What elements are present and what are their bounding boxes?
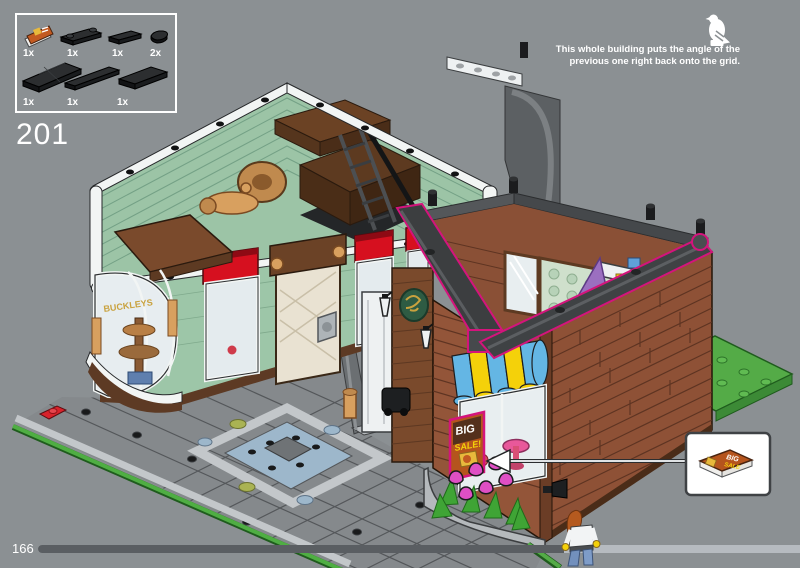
part-big-sale-book-tile bbox=[25, 26, 53, 47]
minifigure-progress-marker bbox=[560, 503, 606, 567]
part-qty: 1x bbox=[112, 48, 123, 59]
part-plate-1x4-studs bbox=[61, 28, 101, 45]
part-qty: 1x bbox=[23, 97, 34, 108]
parts-shapes bbox=[17, 15, 175, 111]
progress-bar[interactable] bbox=[38, 545, 800, 553]
part-tile-1x3 bbox=[109, 31, 141, 44]
hint-line-1: This whole building puts the angle of th… bbox=[556, 44, 740, 56]
instruction-page: BUCKLEYS bbox=[0, 0, 800, 568]
part-qty: 1x bbox=[23, 48, 34, 59]
part-qty: 1x bbox=[67, 48, 78, 59]
part-tile-2x4 bbox=[119, 67, 167, 89]
shop-doorway bbox=[270, 234, 346, 384]
page-number: 166 bbox=[12, 541, 34, 556]
hint-text: This whole building puts the angle of th… bbox=[556, 44, 740, 68]
hint-line-2: previous one right back onto the grid. bbox=[556, 56, 740, 68]
step-number: 201 bbox=[16, 118, 69, 152]
part-qty: 1x bbox=[117, 97, 128, 108]
part-qty: 2x bbox=[150, 48, 161, 59]
parts-panel: 1x 1x 1x 2x 1x 1x 1x bbox=[15, 13, 177, 113]
part-qty: 1x bbox=[67, 97, 78, 108]
progress-fill bbox=[38, 545, 564, 553]
part-rounded-tile-1x2 bbox=[151, 31, 168, 43]
